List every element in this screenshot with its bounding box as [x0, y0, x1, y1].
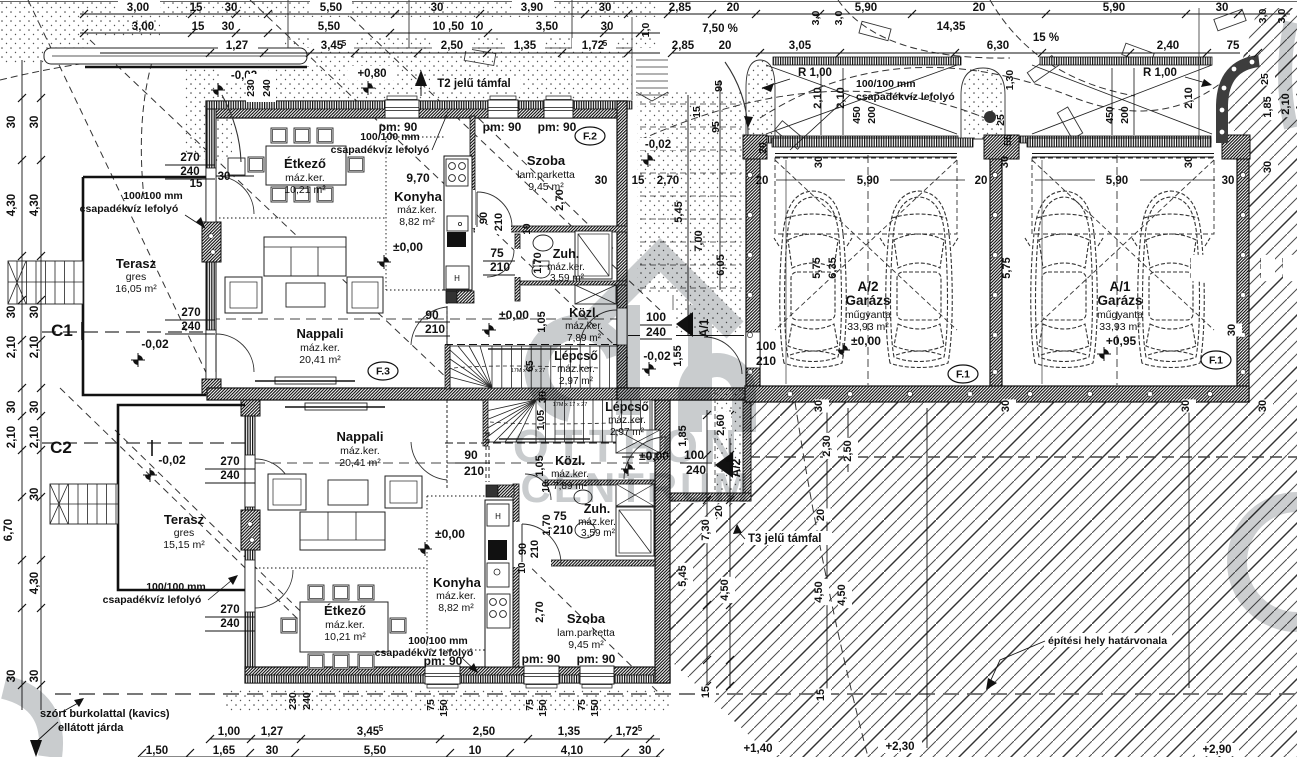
svg-text:30: 30	[225, 2, 238, 14]
svg-text:6,30: 6,30	[987, 40, 1009, 52]
svg-text:1,70: 1,70	[541, 514, 553, 535]
svg-text:210: 210	[756, 354, 776, 368]
svg-text:2,70: 2,70	[534, 601, 546, 622]
svg-text:máz.ker.: máz.ker.	[436, 590, 476, 602]
svg-text:2,70: 2,70	[554, 189, 566, 210]
svg-text:30: 30	[639, 745, 652, 757]
svg-text:75: 75	[524, 699, 536, 711]
svg-text:30: 30	[1262, 161, 1274, 173]
svg-text:3,50: 3,50	[536, 21, 558, 33]
svg-text:CENTRUM: CENTRUM	[521, 464, 752, 511]
svg-text:2,30: 2,30	[821, 435, 833, 456]
svg-text:10,21 m²: 10,21 m²	[284, 184, 326, 196]
svg-text:30: 30	[813, 156, 825, 168]
svg-text:csapadékvíz lefolyó: csapadékvíz lefolyó	[856, 91, 955, 103]
svg-text:F.2: F.2	[583, 131, 597, 143]
svg-text:1,35: 1,35	[514, 40, 537, 52]
svg-text:1,50: 1,50	[146, 745, 168, 757]
svg-text:1,35: 1,35	[558, 726, 581, 738]
svg-text:1,72: 1,72	[616, 726, 638, 738]
svg-text:30: 30	[6, 401, 18, 414]
svg-text:30: 30	[1180, 400, 1192, 412]
svg-text:máz.ker.: máz.ker.	[300, 342, 340, 354]
svg-text:ellátott járda: ellátott járda	[58, 722, 124, 734]
svg-text:5,50: 5,50	[364, 745, 386, 757]
svg-text:20: 20	[727, 2, 740, 14]
svg-text:2,40: 2,40	[1157, 40, 1179, 52]
svg-text:Konyha: Konyha	[394, 189, 442, 204]
svg-text:10,21 m²: 10,21 m²	[324, 631, 366, 643]
svg-text:5,45: 5,45	[677, 565, 689, 586]
svg-text:±0,00: ±0,00	[393, 240, 423, 254]
svg-text:3,0: 3,0	[1257, 9, 1269, 24]
svg-text:4,50: 4,50	[836, 584, 848, 605]
svg-text:33,93 m²: 33,93 m²	[1099, 321, 1141, 333]
svg-text:90: 90	[517, 543, 529, 555]
svg-text:Étkező: Étkező	[284, 156, 326, 171]
svg-text:Szoba: Szoba	[527, 153, 566, 168]
svg-text:máz.ker.: máz.ker.	[285, 172, 325, 184]
svg-text:2,70: 2,70	[657, 175, 679, 187]
svg-text:2,85: 2,85	[669, 2, 692, 14]
svg-text:10: 10	[517, 562, 528, 574]
svg-text:máz.ker.: máz.ker.	[397, 204, 437, 216]
svg-text:6,35: 6,35	[827, 257, 839, 278]
svg-text:pm: 90: pm: 90	[577, 652, 616, 666]
svg-text:Konyha: Konyha	[433, 575, 481, 590]
svg-text:Étkező: Étkező	[324, 603, 366, 618]
svg-text:240: 240	[220, 470, 239, 482]
svg-text:+0,95: +0,95	[1106, 334, 1137, 348]
svg-text:55: 55	[1002, 134, 1014, 146]
svg-text:3,45: 3,45	[321, 40, 344, 52]
svg-text:1,27: 1,27	[226, 40, 248, 52]
svg-text:F.1: F.1	[1209, 355, 1223, 367]
svg-text:+2,90: +2,90	[1202, 744, 1231, 756]
svg-text:15: 15	[700, 686, 712, 698]
svg-text:5,90: 5,90	[1103, 2, 1125, 14]
svg-text:Szoba: Szoba	[567, 611, 606, 626]
svg-text:5: 5	[342, 39, 347, 48]
svg-text:szórt burkolattal (kavics): szórt burkolattal (kavics)	[40, 708, 170, 720]
svg-text:240: 240	[301, 692, 313, 710]
svg-text:Garázs: Garázs	[845, 293, 890, 308]
svg-text:-0,02: -0,02	[645, 139, 671, 151]
svg-text:270: 270	[181, 307, 200, 319]
svg-text:150: 150	[438, 699, 450, 717]
svg-text:150: 150	[589, 699, 601, 717]
svg-text:lam.parketta: lam.parketta	[557, 627, 615, 639]
svg-text:210: 210	[553, 523, 573, 537]
svg-text:450: 450	[1104, 106, 1116, 124]
svg-text:1,85: 1,85	[1262, 96, 1274, 117]
svg-text:2,10: 2,10	[1183, 87, 1195, 108]
svg-text:15: 15	[691, 106, 703, 118]
svg-text:máz.ker.: máz.ker.	[578, 517, 616, 528]
svg-text:100: 100	[756, 339, 776, 353]
svg-text:30: 30	[29, 306, 41, 319]
svg-text:5,45: 5,45	[673, 201, 685, 222]
svg-text:30: 30	[1222, 175, 1235, 187]
svg-text:75: 75	[553, 509, 567, 523]
svg-text:máz.ker.: máz.ker.	[325, 619, 365, 631]
svg-text:+0,80: +0,80	[357, 68, 386, 80]
svg-text:30: 30	[999, 156, 1011, 168]
svg-text:30: 30	[29, 116, 41, 129]
svg-text:H: H	[495, 512, 501, 521]
svg-text:30: 30	[1183, 156, 1195, 168]
svg-text:90: 90	[478, 212, 490, 224]
svg-text:máz.ker.: máz.ker.	[557, 364, 595, 375]
svg-text:15: 15	[632, 175, 645, 187]
svg-text:3,59 m²: 3,59 m²	[550, 273, 585, 284]
svg-text:240: 240	[220, 618, 239, 630]
svg-text:20: 20	[815, 509, 827, 521]
svg-text:3,90: 3,90	[521, 2, 543, 14]
svg-text:30: 30	[222, 21, 235, 33]
svg-text:9,45 m²: 9,45 m²	[568, 639, 604, 651]
svg-text:270: 270	[180, 152, 199, 164]
svg-text:14,35: 14,35	[937, 21, 966, 33]
svg-text:230: 230	[245, 79, 257, 97]
svg-text:gres: gres	[126, 271, 146, 283]
svg-text:7,30: 7,30	[700, 519, 712, 540]
svg-text:10: 10	[522, 223, 533, 235]
svg-text:100: 100	[646, 310, 666, 324]
svg-text:7,00: 7,00	[693, 230, 705, 251]
svg-text:±0,00: ±0,00	[499, 308, 529, 322]
svg-text:4,10: 4,10	[561, 745, 583, 757]
svg-text:máz.ker.: máz.ker.	[547, 262, 585, 273]
svg-text:2,10: 2,10	[6, 336, 18, 358]
svg-text:csapadékvíz lefolyó: csapadékvíz lefolyó	[80, 203, 179, 215]
svg-text:20: 20	[719, 40, 732, 52]
svg-text:2,10: 2,10	[6, 426, 18, 448]
svg-text:gres: gres	[174, 527, 194, 539]
svg-text:9,70: 9,70	[406, 171, 430, 185]
svg-text:15: 15	[815, 689, 827, 701]
svg-text:A/2: A/2	[857, 279, 878, 294]
svg-text:csapadékvíz lefolyó: csapadékvíz lefolyó	[331, 144, 430, 156]
svg-text:Lépcső: Lépcső	[554, 349, 598, 363]
svg-text:30: 30	[1257, 400, 1269, 412]
svg-text:pm: 90: pm: 90	[522, 652, 561, 666]
svg-text:210: 210	[464, 464, 484, 478]
svg-text:H: H	[454, 274, 460, 283]
svg-text:10: 10	[433, 21, 446, 33]
svg-text:100/100 mm: 100/100 mm	[146, 581, 206, 593]
svg-text:100/100 mm: 100/100 mm	[408, 635, 468, 647]
svg-text:3,00: 3,00	[132, 21, 154, 33]
svg-text:C2: C2	[50, 438, 72, 457]
svg-text:450: 450	[851, 106, 863, 124]
svg-text:Nappali: Nappali	[337, 429, 384, 444]
svg-text:+2,30: +2,30	[885, 741, 914, 753]
svg-text:5,50: 5,50	[318, 21, 340, 33]
svg-text:F.1: F.1	[956, 369, 970, 381]
svg-text:Zuh.: Zuh.	[553, 247, 579, 261]
svg-text:8,82 m²: 8,82 m²	[438, 602, 474, 614]
svg-text:200: 200	[866, 106, 878, 124]
svg-text:95: 95	[710, 121, 722, 133]
svg-text:20,41 m²: 20,41 m²	[339, 457, 381, 469]
svg-text:±0,00: ±0,00	[435, 527, 465, 541]
svg-text:240: 240	[261, 79, 273, 97]
svg-text:5: 5	[603, 39, 608, 48]
svg-text:5,90: 5,90	[855, 2, 877, 14]
svg-text:210: 210	[529, 540, 541, 558]
svg-text:15: 15	[192, 21, 205, 33]
svg-text:1,72: 1,72	[582, 40, 604, 52]
svg-text:30: 30	[29, 670, 41, 683]
svg-text:240: 240	[180, 166, 199, 178]
svg-text:T3 jelű támfal: T3 jelű támfal	[748, 533, 822, 545]
svg-text:Nappali: Nappali	[297, 326, 344, 341]
svg-text:1,27: 1,27	[261, 726, 283, 738]
svg-text:75: 75	[1227, 40, 1240, 52]
svg-text:8,82 m²: 8,82 m²	[399, 216, 435, 228]
svg-text:20: 20	[973, 2, 986, 14]
svg-text:4,30: 4,30	[29, 572, 41, 594]
svg-text:30: 30	[29, 401, 41, 414]
svg-text:5,75: 5,75	[1001, 257, 1013, 278]
svg-text:15: 15	[190, 178, 203, 190]
svg-text:4,30: 4,30	[6, 194, 18, 216]
svg-text:5,90: 5,90	[1106, 175, 1128, 187]
svg-text:1,55: 1,55	[672, 345, 684, 366]
svg-text:20,41 m²: 20,41 m²	[299, 354, 341, 366]
svg-text:+1,40: +1,40	[743, 743, 772, 755]
svg-text:3,0: 3,0	[810, 11, 822, 26]
svg-text:R 1,00: R 1,00	[798, 67, 832, 79]
svg-text:pm: 90: pm: 90	[379, 120, 418, 134]
svg-text:15: 15	[190, 2, 203, 14]
svg-text:30: 30	[1226, 324, 1238, 336]
svg-text:pm: 90: pm: 90	[424, 654, 463, 668]
svg-text:20: 20	[975, 175, 988, 187]
svg-text:3,00: 3,00	[127, 2, 149, 14]
svg-text:csapadékvíz lefolyó: csapadékvíz lefolyó	[103, 594, 202, 606]
svg-text:25: 25	[1259, 73, 1271, 85]
svg-text:C1: C1	[51, 321, 73, 340]
svg-text:1,70: 1,70	[532, 252, 544, 273]
svg-text:A/1: A/1	[1109, 279, 1131, 294]
svg-text:3,45: 3,45	[357, 726, 380, 738]
svg-text:16,05 m²: 16,05 m²	[115, 283, 157, 295]
svg-text:75: 75	[490, 246, 504, 260]
svg-text:200: 200	[1119, 106, 1131, 124]
svg-text:2,10: 2,10	[835, 87, 847, 108]
svg-text:5: 5	[379, 724, 384, 733]
svg-text:Garázs: Garázs	[1097, 293, 1142, 308]
svg-text:30: 30	[431, 2, 444, 14]
svg-text:-0,02: -0,02	[141, 337, 169, 351]
svg-text:75: 75	[425, 699, 437, 711]
svg-text:30: 30	[1216, 2, 1229, 14]
svg-text:-0,02: -0,02	[643, 349, 671, 363]
svg-text:270: 270	[220, 604, 239, 616]
svg-text:3,59 m²: 3,59 m²	[581, 528, 616, 539]
svg-text:20: 20	[756, 175, 769, 187]
svg-text:4,50: 4,50	[719, 579, 731, 600]
svg-text:máz.ker.: máz.ker.	[340, 445, 380, 457]
svg-text:100/100 mm: 100/100 mm	[856, 78, 916, 90]
svg-text:90: 90	[425, 308, 439, 322]
svg-text:2,10: 2,10	[812, 87, 824, 108]
svg-text:±0,00: ±0,00	[851, 334, 881, 348]
svg-text:,50: ,50	[448, 21, 464, 33]
svg-text:5,50: 5,50	[320, 2, 342, 14]
svg-text:30: 30	[599, 2, 612, 14]
svg-text:1,0: 1,0	[640, 23, 652, 38]
svg-text:210: 210	[493, 213, 505, 231]
svg-text:240: 240	[646, 325, 666, 339]
svg-text:F.3: F.3	[376, 366, 390, 378]
svg-text:2,10: 2,10	[29, 426, 41, 448]
svg-text:30: 30	[218, 171, 231, 183]
svg-text:műgyanta: műgyanta	[845, 309, 891, 321]
svg-text:1,30: 1,30	[1004, 70, 1016, 91]
svg-text:6,05: 6,05	[715, 254, 727, 275]
svg-text:7,50 %: 7,50 %	[702, 23, 738, 35]
svg-text:150: 150	[537, 699, 549, 717]
svg-text:építési hely határvonala: építési hely határvonala	[1048, 635, 1167, 647]
svg-text:4,50: 4,50	[813, 581, 825, 602]
svg-text:5,75: 5,75	[811, 257, 823, 278]
svg-text:230: 230	[287, 692, 299, 710]
svg-text:15,15 m²: 15,15 m²	[163, 539, 205, 551]
svg-text:2,50: 2,50	[473, 726, 495, 738]
svg-text:100/100 mm: 100/100 mm	[123, 190, 183, 202]
svg-text:2,50: 2,50	[842, 440, 854, 461]
svg-text:30: 30	[6, 306, 18, 319]
svg-text:30: 30	[595, 175, 608, 187]
svg-text:Terasz: Terasz	[164, 512, 205, 527]
svg-text:210: 210	[490, 260, 510, 274]
svg-text:95: 95	[713, 80, 725, 92]
svg-text:R 1,00: R 1,00	[1143, 67, 1177, 79]
svg-text:210: 210	[425, 322, 445, 336]
svg-text:270: 270	[220, 456, 239, 468]
svg-text:Terasz: Terasz	[116, 256, 157, 271]
svg-text:4,30: 4,30	[29, 194, 41, 216]
svg-text:240: 240	[181, 321, 200, 333]
svg-text:30: 30	[813, 400, 825, 412]
svg-text:30: 30	[266, 745, 279, 757]
svg-text:3,0: 3,0	[833, 11, 845, 26]
svg-text:1,00: 1,00	[218, 726, 240, 738]
svg-text:pm: 90: pm: 90	[483, 120, 522, 134]
svg-text:lam.parketta: lam.parketta	[517, 169, 575, 181]
svg-text:90: 90	[464, 448, 478, 462]
svg-text:műgyanta: műgyanta	[1097, 309, 1143, 321]
svg-text:30: 30	[29, 488, 41, 501]
svg-text:2,97 m²: 2,97 m²	[559, 376, 594, 387]
svg-text:pm: 90: pm: 90	[538, 120, 577, 134]
svg-text:5: 5	[638, 724, 643, 733]
svg-text:3,05: 3,05	[789, 40, 812, 52]
svg-text:10: 10	[469, 745, 482, 757]
svg-text:20: 20	[757, 142, 769, 154]
svg-text:75: 75	[576, 699, 588, 711]
svg-text:T2 jelű támfal: T2 jelű támfal	[437, 78, 511, 90]
svg-text:25: 25	[995, 114, 1007, 126]
svg-text:30: 30	[601, 21, 614, 33]
svg-text:2,10: 2,10	[29, 336, 41, 358]
svg-text:30: 30	[1000, 400, 1012, 412]
svg-text:2,85: 2,85	[672, 40, 695, 52]
svg-text:2,50: 2,50	[441, 40, 463, 52]
svg-text:15 %: 15 %	[1033, 32, 1059, 44]
svg-text:-0,02: -0,02	[158, 453, 186, 467]
svg-text:33,93 m²: 33,93 m²	[847, 321, 889, 333]
svg-text:5,90: 5,90	[857, 175, 879, 187]
svg-text:1,65: 1,65	[213, 745, 236, 757]
svg-text:6,70: 6,70	[3, 519, 15, 541]
svg-text:30: 30	[6, 116, 18, 129]
svg-text:10: 10	[471, 21, 484, 33]
